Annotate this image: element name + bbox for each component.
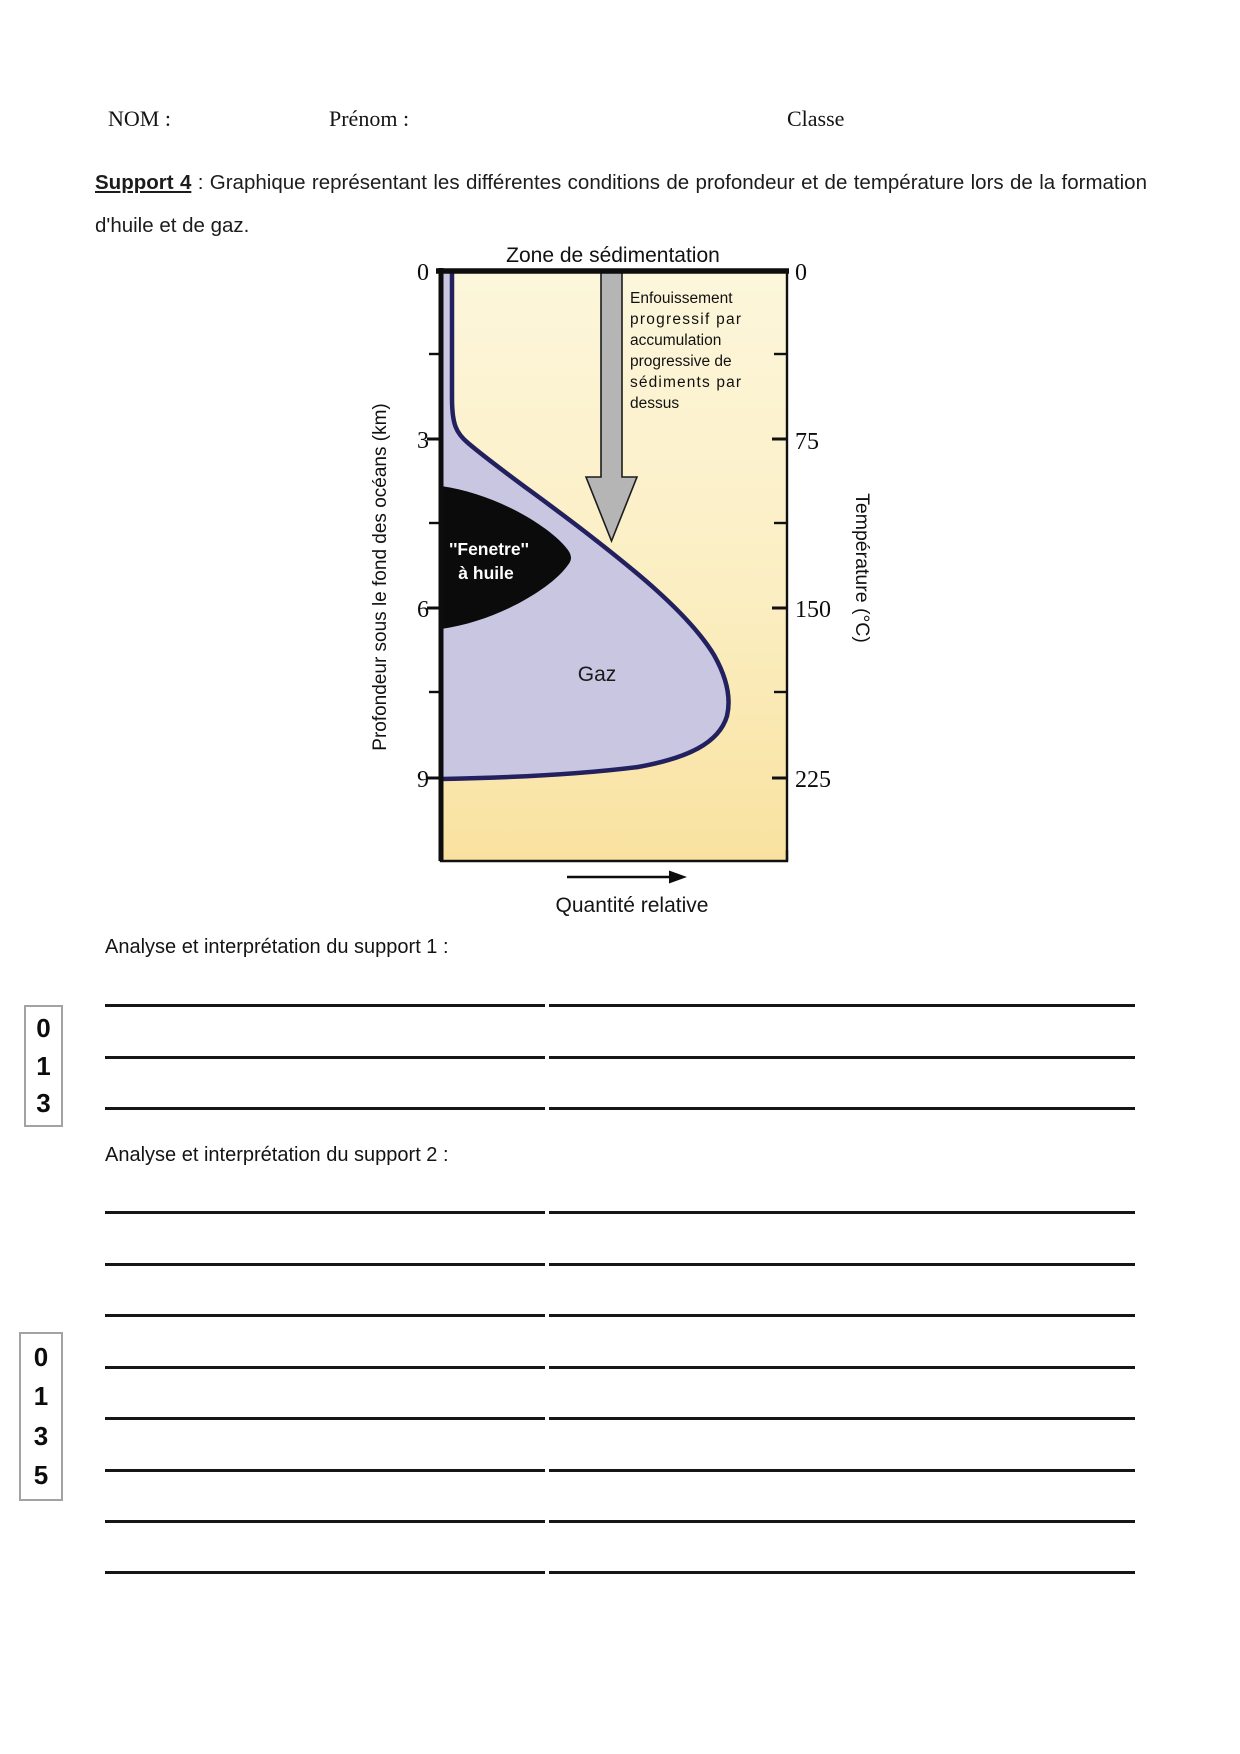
right-axis-tick-75: 75: [795, 429, 819, 455]
burial-note-line1: Enfouissement: [630, 290, 733, 307]
grade-box-section-2: 0 1 3 5: [19, 1332, 63, 1501]
oil-gas-depth-temperature-diagram: ''Fenetre'' à huile Gaz Enfouissement pr…: [330, 235, 890, 925]
right-axis-tick-150: 150: [795, 597, 831, 623]
answer-line: [105, 1469, 545, 1472]
burial-note-line5: sédiments par: [630, 374, 741, 391]
section-1-label: Analyse et interprétation du support 1 :: [105, 936, 449, 959]
left-axis-tick-3: 3: [417, 428, 429, 454]
burial-note-line2: progressif par: [630, 311, 741, 328]
answer-line: [105, 1211, 545, 1214]
answer-line: [549, 1469, 1135, 1472]
section-2-label: Analyse et interprétation du support 2 :: [105, 1144, 449, 1167]
grade-box-section-1: 0 1 3: [24, 1005, 63, 1127]
answer-line: [105, 1520, 545, 1523]
depth-axis-title: Profondeur sous le fond des océans (km): [370, 403, 391, 750]
answer-line: [549, 1314, 1135, 1317]
answer-line: [549, 1107, 1135, 1110]
answer-line: [105, 1263, 545, 1266]
burial-note-line6: dessus: [630, 395, 679, 412]
answer-line: [549, 1366, 1135, 1369]
answer-line: [105, 1571, 545, 1574]
answer-line: [549, 1211, 1135, 1214]
answer-line: [105, 1056, 545, 1059]
answer-line: [549, 1263, 1135, 1266]
answer-line: [549, 1056, 1135, 1059]
answer-line: [549, 1520, 1135, 1523]
answer-line: [105, 1107, 545, 1110]
right-axis-tick-225: 225: [795, 767, 831, 793]
firstname-field-label: Prénom :: [329, 106, 409, 132]
burial-note-line4: progressive de: [630, 353, 732, 370]
support-caption-title: Support 4: [95, 171, 191, 194]
answer-line: [105, 1366, 545, 1369]
grade-value: 3: [36, 1088, 50, 1119]
temperature-axis-title: Température (°C): [851, 493, 873, 643]
left-axis-tick-9: 9: [417, 767, 429, 793]
left-axis-tick-6: 6: [417, 597, 429, 623]
x-axis-label: Quantité relative: [556, 894, 709, 917]
answer-line: [105, 1417, 545, 1420]
class-field-label: Classe: [787, 106, 844, 132]
grade-value: 1: [36, 1051, 50, 1082]
support-caption-text: : Graphique représentant les différentes…: [95, 171, 1147, 237]
answer-line: [549, 1571, 1135, 1574]
gas-label: Gaz: [578, 663, 617, 686]
grade-value: 5: [34, 1460, 48, 1491]
answer-line: [549, 1417, 1135, 1420]
grade-value: 1: [34, 1381, 48, 1412]
sedimentation-zone-title: Zone de sédimentation: [506, 244, 720, 267]
worksheet-page: { "header": { "nom": "NOM :", "prenom": …: [0, 0, 1240, 1754]
name-field-label: NOM :: [108, 106, 171, 132]
grade-value: 3: [34, 1421, 48, 1452]
answer-line: [105, 1004, 545, 1007]
answer-line: [105, 1314, 545, 1317]
right-axis-tick-0: 0: [795, 260, 807, 286]
grade-value: 0: [34, 1342, 48, 1373]
oil-window-label-line1: ''Fenetre'': [449, 539, 529, 559]
burial-note-line3: accumulation: [630, 332, 721, 349]
left-axis-tick-0: 0: [417, 260, 429, 286]
grade-value: 0: [36, 1013, 50, 1044]
relative-quantity-arrow-icon: [567, 871, 687, 884]
oil-window-label-line2: à huile: [458, 563, 514, 583]
answer-line: [549, 1004, 1135, 1007]
